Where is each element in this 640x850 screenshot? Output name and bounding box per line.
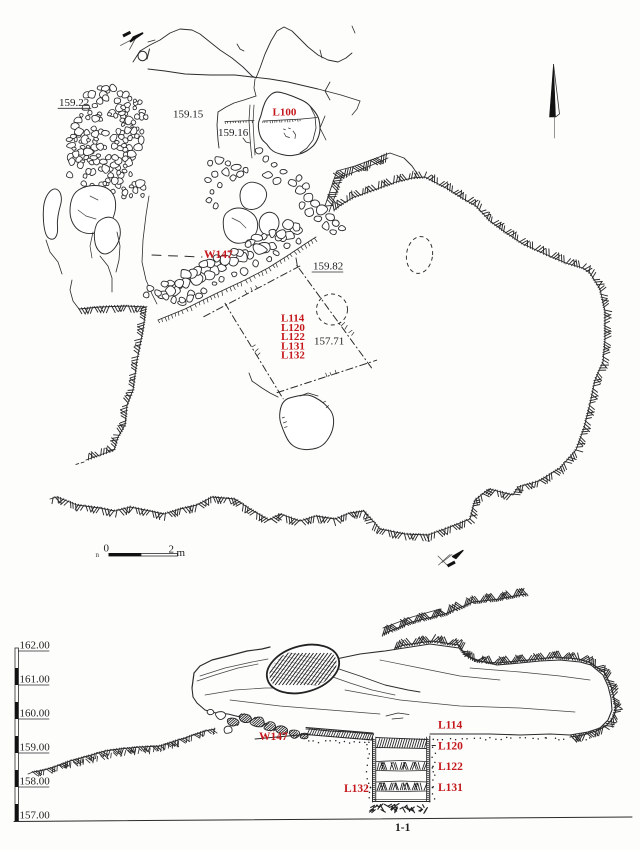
svg-text:160.00: 160.00 bbox=[20, 708, 51, 720]
svg-text:159.15: 159.15 bbox=[173, 109, 204, 121]
svg-text:L122: L122 bbox=[438, 761, 463, 773]
svg-text:L131: L131 bbox=[438, 782, 463, 794]
svg-text:159.22: 159.22 bbox=[59, 97, 89, 109]
svg-text:L114: L114 bbox=[438, 720, 463, 732]
svg-text:159.16: 159.16 bbox=[218, 127, 249, 139]
svg-text:L100: L100 bbox=[273, 107, 297, 119]
svg-text:161.00: 161.00 bbox=[20, 674, 51, 686]
svg-text:m: m bbox=[177, 547, 186, 559]
svg-text:158.00: 158.00 bbox=[20, 776, 51, 788]
svg-text:159.82: 159.82 bbox=[313, 261, 343, 273]
svg-text:L120: L120 bbox=[438, 741, 463, 753]
svg-text:L132: L132 bbox=[281, 350, 305, 362]
svg-text:157.71: 157.71 bbox=[314, 336, 344, 348]
svg-text:0: 0 bbox=[104, 543, 110, 555]
svg-text:157.00: 157.00 bbox=[20, 810, 51, 822]
svg-text:n: n bbox=[96, 551, 100, 559]
svg-text:L132: L132 bbox=[344, 783, 369, 795]
svg-text:W147: W147 bbox=[204, 249, 233, 261]
svg-text:162.00: 162.00 bbox=[20, 640, 51, 652]
svg-text:159.00: 159.00 bbox=[20, 742, 51, 754]
svg-text:2: 2 bbox=[169, 544, 175, 556]
svg-text:1-1: 1-1 bbox=[395, 822, 411, 834]
svg-text:W147: W147 bbox=[259, 731, 288, 743]
